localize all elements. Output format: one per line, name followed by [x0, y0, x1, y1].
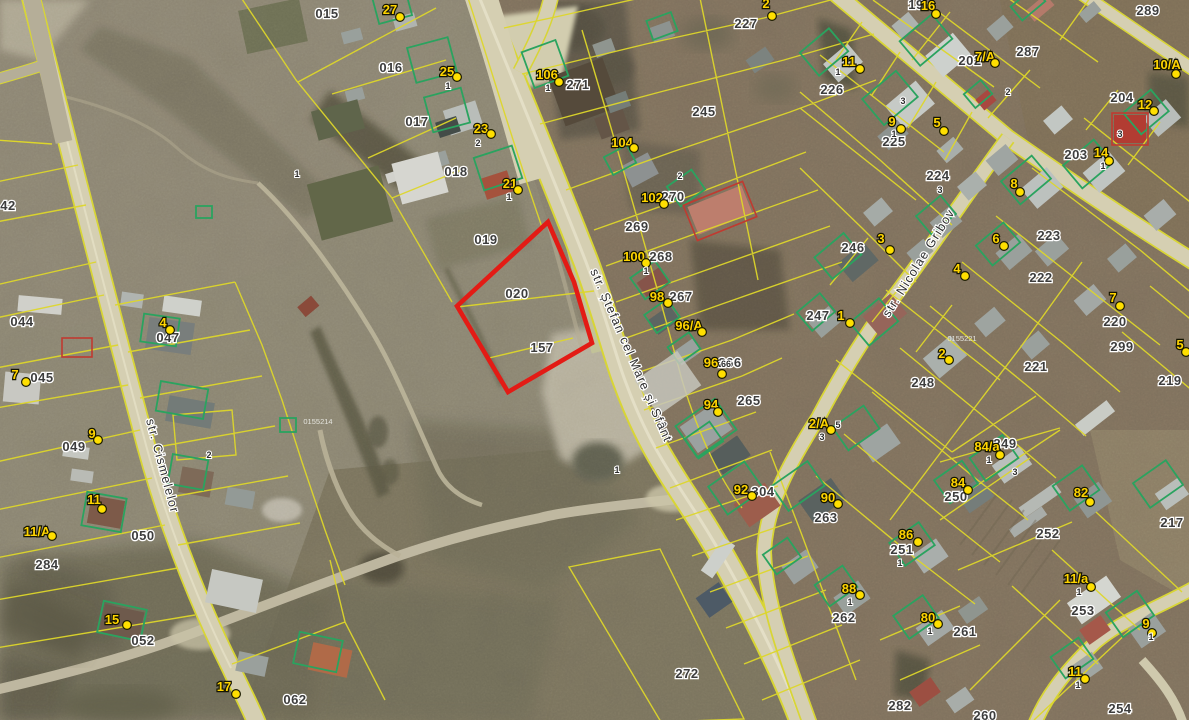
svg-text:1: 1	[835, 67, 840, 77]
svg-text:246: 246	[841, 240, 864, 255]
svg-text:272: 272	[675, 666, 698, 681]
svg-text:3: 3	[937, 185, 942, 195]
svg-text:267: 267	[669, 289, 692, 304]
svg-text:1: 1	[1076, 587, 1081, 597]
svg-text:3: 3	[1117, 129, 1122, 139]
svg-text:3: 3	[900, 96, 905, 106]
svg-text:1: 1	[506, 192, 511, 202]
svg-text:262: 262	[832, 610, 855, 625]
svg-text:1: 1	[294, 169, 299, 179]
svg-text:2: 2	[475, 138, 480, 148]
svg-text:3: 3	[1012, 467, 1017, 477]
svg-text:2: 2	[1005, 87, 1010, 97]
svg-text:224: 224	[926, 168, 949, 183]
svg-text:252: 252	[1036, 526, 1059, 541]
svg-text:7: 7	[11, 367, 18, 382]
svg-text:90: 90	[821, 490, 835, 505]
svg-text:1: 1	[445, 81, 450, 91]
svg-text:1: 1	[1100, 161, 1105, 171]
svg-text:1: 1	[545, 83, 550, 93]
svg-text:284: 284	[35, 557, 58, 572]
svg-text:1: 1	[1075, 680, 1080, 690]
svg-text:020: 020	[505, 286, 528, 301]
svg-text:263: 263	[814, 510, 837, 525]
svg-text:0155214: 0155214	[303, 417, 332, 426]
svg-text:5: 5	[835, 420, 840, 430]
svg-text:269: 269	[625, 219, 648, 234]
svg-text:050: 050	[131, 528, 154, 543]
svg-text:1: 1	[927, 626, 932, 636]
svg-text:268: 268	[649, 249, 672, 264]
svg-text:157: 157	[530, 340, 553, 355]
svg-text:045: 045	[30, 370, 53, 385]
svg-text:227: 227	[734, 16, 757, 31]
svg-text:9: 9	[888, 114, 895, 129]
svg-text:220: 220	[1103, 314, 1126, 329]
svg-text:88: 88	[842, 581, 856, 596]
svg-text:9: 9	[1142, 616, 1149, 631]
svg-text:82: 82	[1074, 485, 1088, 500]
svg-text:221: 221	[1024, 359, 1047, 374]
svg-text:260: 260	[973, 708, 996, 720]
svg-text:92: 92	[734, 482, 748, 497]
svg-text:11: 11	[842, 54, 856, 69]
svg-text:11/a: 11/a	[1064, 571, 1089, 586]
svg-text:15: 15	[105, 612, 119, 627]
svg-text:3: 3	[877, 231, 884, 246]
svg-text:27: 27	[383, 2, 397, 17]
svg-text:251: 251	[890, 542, 913, 557]
svg-text:217: 217	[1160, 515, 1183, 530]
svg-text:42: 42	[0, 198, 15, 213]
svg-text:1: 1	[614, 465, 619, 475]
svg-text:98: 98	[650, 289, 664, 304]
svg-text:11: 11	[1068, 664, 1082, 679]
svg-text:204: 204	[1110, 90, 1133, 105]
svg-text:271: 271	[566, 77, 589, 92]
svg-text:248: 248	[911, 375, 934, 390]
svg-text:11: 11	[87, 492, 101, 507]
svg-text:062: 062	[283, 692, 306, 707]
svg-text:265: 265	[737, 393, 760, 408]
svg-text:299: 299	[1110, 339, 1133, 354]
svg-text:222: 222	[1029, 270, 1052, 285]
svg-text:3: 3	[819, 432, 824, 442]
svg-text:254: 254	[1108, 701, 1131, 716]
svg-text:245: 245	[692, 104, 715, 119]
svg-text:80: 80	[921, 610, 935, 625]
svg-text:17: 17	[217, 679, 231, 694]
svg-text:223: 223	[1037, 228, 1060, 243]
svg-text:019: 019	[474, 232, 497, 247]
svg-text:044: 044	[10, 314, 33, 329]
svg-text:4: 4	[953, 261, 961, 276]
svg-text:287: 287	[1016, 44, 1039, 59]
svg-text:203: 203	[1064, 147, 1087, 162]
svg-text:1: 1	[847, 597, 852, 607]
svg-text:253: 253	[1071, 603, 1094, 618]
svg-text:2: 2	[206, 450, 211, 460]
svg-text:0155221: 0155221	[947, 334, 976, 343]
svg-text:015: 015	[315, 6, 338, 21]
svg-text:7: 7	[1109, 290, 1116, 305]
svg-text:1: 1	[643, 266, 648, 276]
svg-text:017: 017	[405, 114, 428, 129]
svg-text:289: 289	[1136, 3, 1159, 18]
svg-text:247: 247	[806, 308, 829, 323]
svg-text:6: 6	[992, 231, 999, 246]
svg-text:018: 018	[444, 164, 467, 179]
svg-text:86: 86	[899, 527, 913, 542]
svg-text:1: 1	[837, 308, 844, 323]
svg-text:016: 016	[379, 60, 402, 75]
svg-text:1: 1	[1148, 632, 1153, 642]
svg-text:66: 66	[721, 359, 731, 369]
svg-text:261: 261	[953, 624, 976, 639]
svg-text:1: 1	[986, 455, 991, 465]
svg-text:219: 219	[1158, 373, 1181, 388]
svg-text:282: 282	[888, 698, 911, 713]
svg-text:052: 052	[131, 633, 154, 648]
svg-text:2: 2	[677, 171, 682, 181]
svg-text:11/A: 11/A	[24, 524, 51, 539]
svg-text:2: 2	[762, 0, 769, 11]
svg-text:1: 1	[897, 558, 902, 568]
svg-text:1: 1	[891, 129, 896, 139]
svg-text:96: 96	[704, 355, 718, 370]
svg-text:5: 5	[933, 115, 940, 130]
svg-text:049: 049	[62, 439, 85, 454]
svg-text:226: 226	[820, 82, 843, 97]
